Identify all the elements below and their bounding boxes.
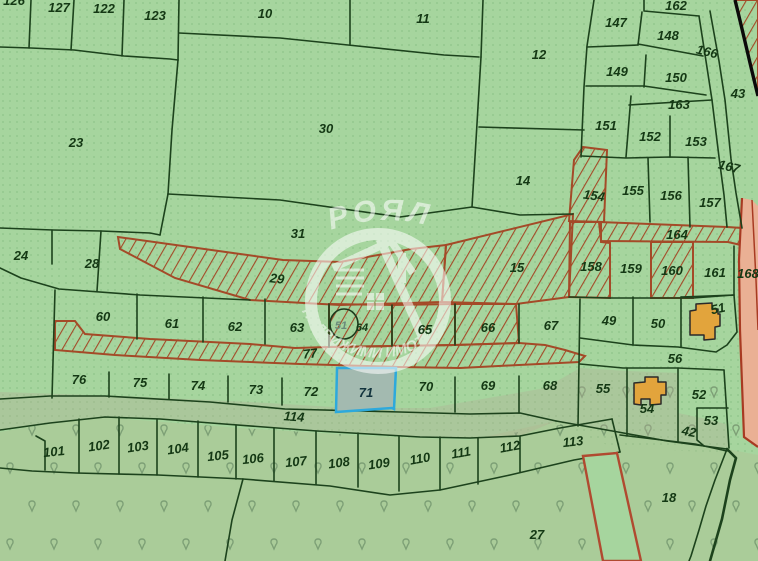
svg-text:150: 150 [665,70,687,85]
svg-text:30: 30 [319,121,334,136]
svg-text:156: 156 [660,188,682,203]
svg-text:127: 127 [48,0,70,15]
svg-text:31: 31 [291,226,305,241]
svg-text:50: 50 [651,316,666,331]
svg-text:149: 149 [606,64,628,79]
svg-text:155: 155 [622,183,644,198]
svg-text:74: 74 [191,378,206,393]
svg-text:62: 62 [228,319,243,334]
svg-text:18: 18 [662,490,677,505]
svg-text:107: 107 [284,453,308,470]
svg-text:153: 153 [685,134,707,149]
svg-text:43: 43 [730,86,746,101]
svg-text:15: 15 [510,260,525,275]
svg-text:126: 126 [3,0,25,8]
svg-text:63: 63 [290,320,305,335]
svg-text:77: 77 [302,345,319,362]
svg-text:61: 61 [165,316,179,331]
svg-text:66: 66 [481,320,496,335]
svg-text:51: 51 [335,320,347,332]
svg-text:157: 157 [699,195,721,210]
svg-text:10: 10 [258,6,273,21]
svg-text:52: 52 [692,387,707,402]
svg-text:67: 67 [544,318,559,333]
svg-text:75: 75 [133,375,148,390]
svg-text:12: 12 [532,47,547,62]
svg-text:53: 53 [704,413,719,428]
svg-text:108: 108 [327,453,351,471]
svg-text:105: 105 [206,447,230,464]
svg-text:65: 65 [418,322,433,337]
svg-text:158: 158 [580,259,602,274]
svg-text:73: 73 [249,382,264,397]
svg-text:152: 152 [639,129,661,144]
svg-text:109: 109 [367,454,391,472]
svg-text:159: 159 [620,261,642,276]
svg-text:54: 54 [640,401,655,416]
svg-text:69: 69 [481,378,496,393]
svg-text:102: 102 [87,436,111,454]
svg-text:106: 106 [241,450,265,467]
svg-text:51: 51 [709,300,726,318]
svg-text:122: 122 [93,1,115,16]
svg-text:123: 123 [144,8,166,23]
svg-text:104: 104 [166,439,190,457]
svg-text:11: 11 [416,11,430,26]
svg-text:60: 60 [96,309,111,324]
svg-text:148: 148 [657,28,679,43]
svg-text:163: 163 [668,97,690,112]
svg-text:160: 160 [661,263,683,278]
svg-text:154: 154 [582,187,606,205]
svg-text:56: 56 [668,351,683,366]
svg-text:114: 114 [283,408,305,424]
svg-text:103: 103 [126,437,150,455]
svg-text:161: 161 [704,265,726,280]
svg-text:64: 64 [356,322,368,334]
svg-text:27: 27 [529,527,545,542]
svg-text:24: 24 [13,248,29,263]
svg-text:101: 101 [42,443,65,460]
svg-text:151: 151 [595,118,617,133]
svg-text:76: 76 [72,372,87,387]
svg-text:29: 29 [268,270,286,287]
svg-text:113: 113 [562,433,585,450]
svg-text:14: 14 [516,173,531,188]
svg-text:168: 168 [737,266,758,281]
svg-text:70: 70 [419,379,434,394]
svg-text:147: 147 [605,15,627,30]
svg-text:164: 164 [666,227,688,242]
svg-text:162: 162 [665,0,687,13]
svg-text:23: 23 [68,135,84,150]
svg-text:28: 28 [84,256,100,271]
svg-text:71: 71 [359,385,373,400]
svg-text:72: 72 [304,384,319,399]
svg-text:68: 68 [543,378,558,393]
svg-text:55: 55 [596,381,611,396]
svg-text:49: 49 [601,313,617,328]
